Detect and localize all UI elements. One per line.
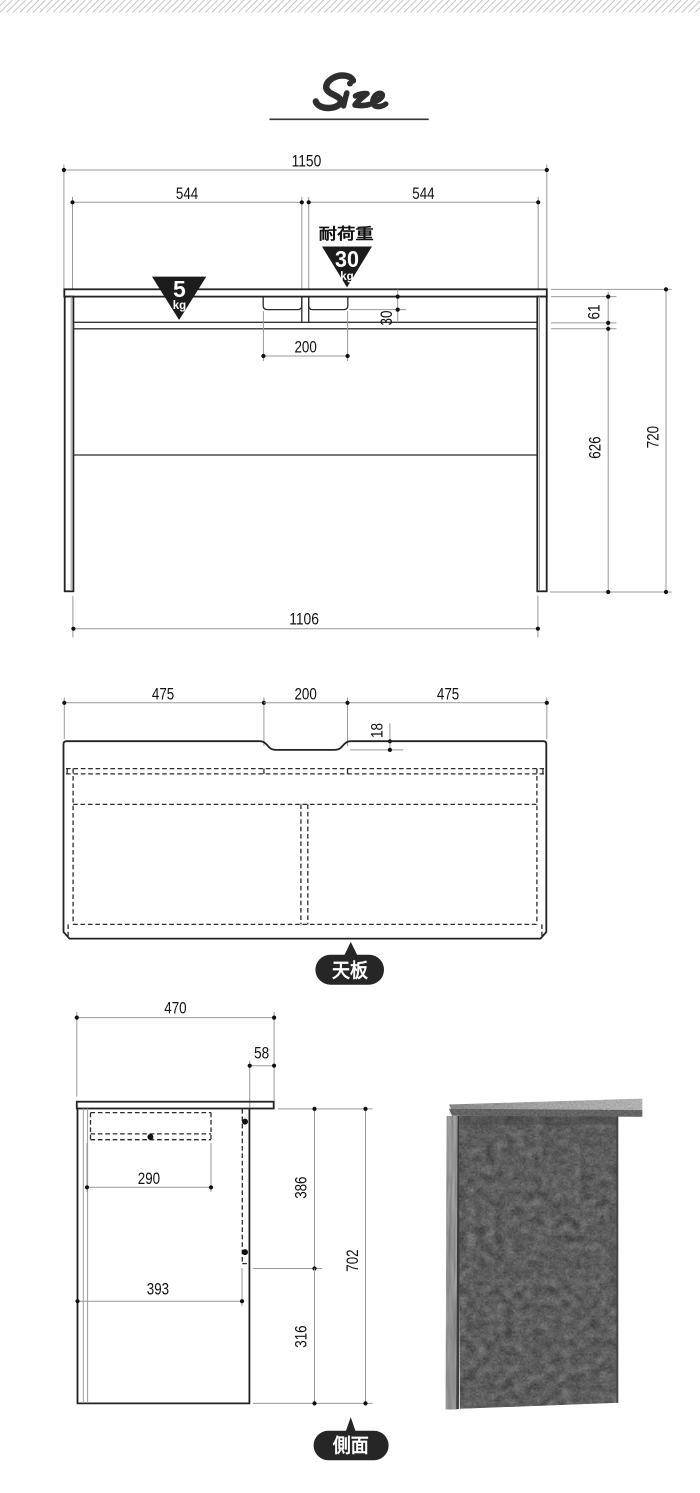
svg-text:30: 30 (378, 311, 396, 326)
svg-text:61: 61 (586, 305, 604, 320)
svg-text:386: 386 (293, 1177, 311, 1199)
svg-text:30: 30 (335, 246, 359, 272)
svg-text:290: 290 (138, 1170, 160, 1188)
svg-text:耐荷重: 耐荷重 (319, 224, 375, 243)
svg-text:18: 18 (369, 723, 387, 738)
svg-text:kg: kg (340, 271, 353, 283)
svg-text:475: 475 (437, 685, 459, 703)
svg-text:470: 470 (164, 999, 186, 1017)
svg-text:200: 200 (295, 685, 317, 703)
svg-text:393: 393 (147, 1281, 169, 1299)
svg-text:720: 720 (645, 426, 663, 448)
svg-text:475: 475 (152, 685, 174, 703)
svg-text:58: 58 (254, 1045, 269, 1063)
svg-text:1150: 1150 (292, 153, 322, 171)
svg-text:天板: 天板 (332, 959, 368, 982)
svg-text:316: 316 (293, 1325, 311, 1347)
svg-text:kg: kg (173, 300, 186, 312)
svg-text:5: 5 (173, 276, 186, 302)
svg-text:200: 200 (295, 339, 317, 357)
svg-text:702: 702 (344, 1249, 362, 1271)
svg-text:544: 544 (176, 185, 198, 203)
svg-text:544: 544 (412, 185, 434, 203)
svg-text:626: 626 (587, 436, 605, 458)
svg-text:側面: 側面 (332, 1435, 369, 1457)
svg-text:1106: 1106 (289, 611, 319, 629)
